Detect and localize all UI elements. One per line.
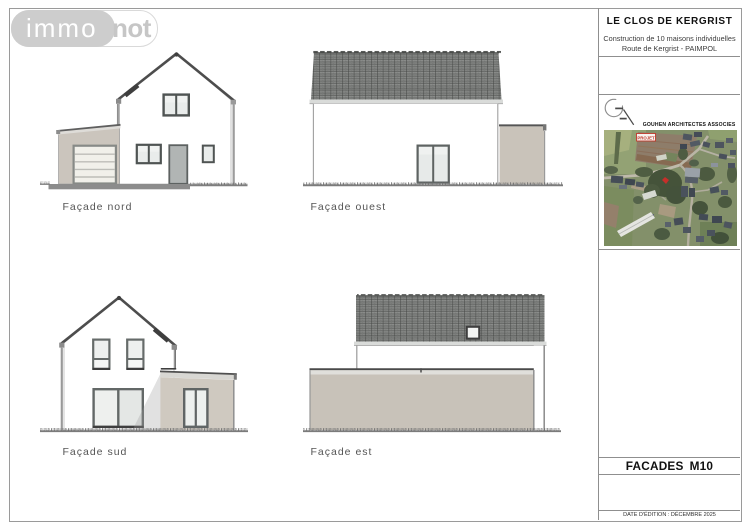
svg-text:Façade sud: Façade sud bbox=[63, 446, 128, 458]
svg-text:Façade ouest: Façade ouest bbox=[311, 201, 387, 213]
svg-text:Façade nord: Façade nord bbox=[63, 201, 133, 213]
svg-text:Façade est: Façade est bbox=[311, 446, 373, 458]
